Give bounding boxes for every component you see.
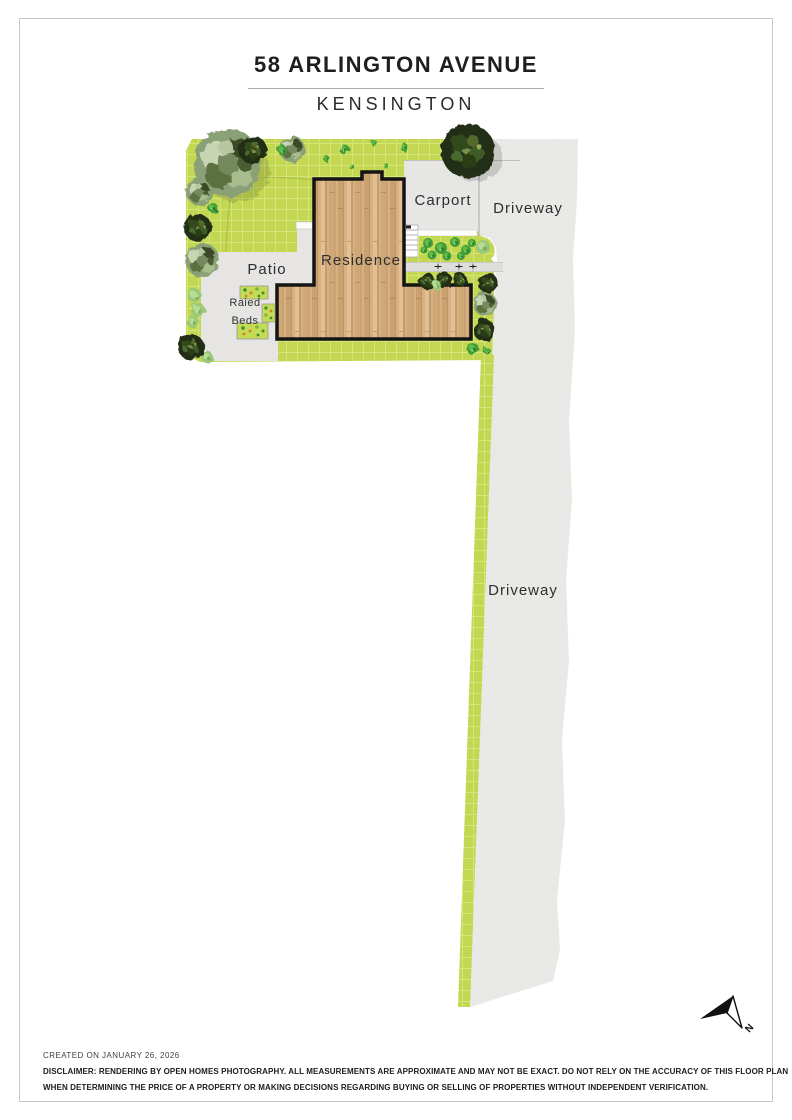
bush [277, 145, 287, 155]
bush [324, 156, 330, 162]
side-path [404, 262, 503, 272]
site-plan: Residence Patio Carport Driveway Drivewa… [0, 0, 792, 1120]
bush [384, 164, 389, 169]
bush [187, 316, 199, 328]
bush [431, 280, 441, 290]
tree [478, 273, 498, 293]
driveway-main-label: Driveway [488, 582, 558, 599]
tree [441, 124, 495, 178]
bush [350, 165, 355, 170]
bush [208, 203, 218, 213]
bush [484, 348, 491, 355]
tree [473, 292, 497, 316]
carport-label: Carport [414, 192, 471, 209]
created-date: CREATED ON JANUARY 26, 2026 [43, 1051, 180, 1060]
patio-label: Patio [247, 261, 286, 278]
disclaimer-line2: WHEN DETERMINING THE PRICE OF A PROPERTY… [43, 1083, 708, 1092]
tree [473, 319, 495, 341]
patio-step [296, 222, 314, 229]
tree [186, 179, 212, 205]
north-arrow-filled-wing [700, 996, 733, 1019]
north-label: N [743, 1022, 756, 1035]
driveway-top-label: Driveway [493, 200, 563, 217]
tree [178, 334, 204, 360]
bush [453, 273, 467, 287]
residence-label: Residence [321, 252, 401, 269]
bush [201, 351, 213, 363]
bush [340, 145, 350, 155]
tree [185, 243, 219, 277]
tree [239, 136, 267, 164]
bush [187, 288, 201, 302]
raised-bed [262, 304, 275, 322]
north-arrow: N [700, 996, 756, 1035]
bush [400, 143, 408, 151]
raised-beds-label-line1: Raied [229, 297, 260, 309]
bush [191, 303, 205, 317]
bush [371, 140, 377, 146]
raised-beds-label-line2: Beds [231, 315, 258, 327]
tree [184, 214, 212, 242]
steps [404, 225, 418, 257]
bush [467, 343, 479, 355]
disclaimer-line1: DISCLAIMER: RENDERING BY OPEN HOMES PHOT… [43, 1067, 788, 1076]
